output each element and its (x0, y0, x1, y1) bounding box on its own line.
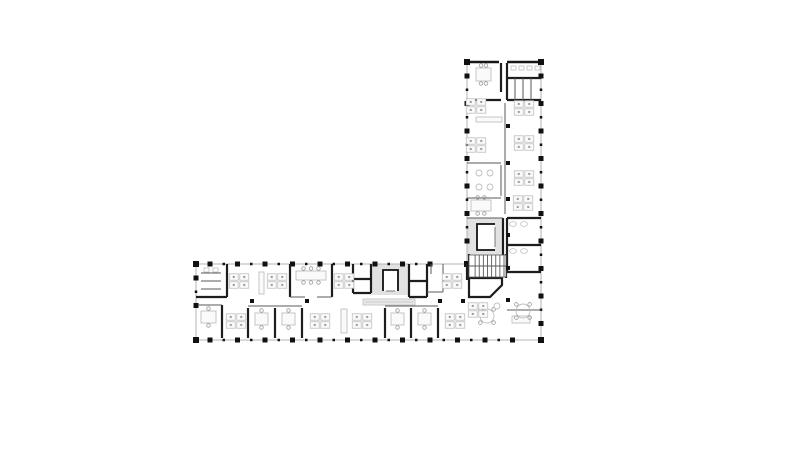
corner-column (193, 261, 199, 267)
desk-chair (366, 324, 368, 326)
desk-chair (324, 324, 326, 326)
desk-chair (338, 276, 340, 278)
chair (515, 303, 519, 307)
desk-chair (470, 140, 472, 142)
facade-column (539, 294, 544, 299)
desk-chair (480, 148, 482, 150)
facade-column (194, 303, 199, 308)
interior-column (305, 299, 309, 303)
facade-column (428, 338, 433, 343)
facade-column (345, 338, 350, 343)
facade-column (345, 262, 350, 267)
facade-tick (540, 254, 543, 257)
floor-plan (0, 0, 800, 472)
facade-column (235, 338, 240, 343)
facade-column (290, 338, 295, 343)
desk-chair (518, 111, 520, 113)
interior-column (506, 124, 510, 128)
meeting-table (255, 313, 268, 325)
desk-chair (281, 276, 283, 278)
facade-column (208, 262, 213, 267)
facade-tick (540, 171, 543, 174)
desk (341, 309, 347, 333)
chair (479, 82, 483, 86)
facade-tick (305, 339, 308, 342)
chair (423, 309, 427, 313)
desk-chair (356, 316, 358, 318)
desk-chair (527, 198, 529, 200)
facade-tick (223, 339, 226, 342)
facade-column (235, 262, 240, 267)
facade-tick (223, 263, 226, 266)
interior-column (506, 266, 510, 270)
desk-chair (517, 198, 519, 200)
facade-tick (540, 89, 543, 92)
desk-chair (456, 284, 458, 286)
facade-tick (250, 263, 253, 266)
wc-fixture (527, 66, 532, 70)
desk-chair (446, 284, 448, 286)
chair (317, 267, 321, 271)
chair (309, 267, 313, 271)
desk-chair (472, 313, 474, 315)
chair (483, 212, 487, 216)
wc-fixture (535, 66, 540, 70)
facade-tick (540, 281, 543, 284)
interior-column (438, 299, 442, 303)
meeting-table (282, 313, 295, 325)
small-round-table (487, 170, 493, 176)
desk-chair (314, 324, 316, 326)
desk-chair (472, 305, 474, 307)
desk-chair (243, 284, 245, 286)
small-round-table (476, 184, 482, 190)
desk-chair (517, 206, 519, 208)
wc-fixture (511, 66, 516, 70)
desk-chair (518, 173, 520, 175)
facade-column (539, 129, 544, 134)
chair (302, 267, 306, 271)
desk-chair (348, 284, 350, 286)
wc-fixture (204, 268, 209, 272)
facade-column (465, 156, 470, 161)
chair (528, 303, 532, 307)
meeting-table (296, 271, 326, 280)
desk-chair (528, 138, 530, 140)
interior-column (506, 161, 510, 165)
facade-column (539, 156, 544, 161)
desk-chair (233, 276, 235, 278)
desk-chair (449, 324, 451, 326)
desk-chair (482, 313, 484, 315)
facade-tick (278, 263, 281, 266)
desk-chair (518, 103, 520, 105)
chair (260, 309, 264, 313)
corner-column (538, 59, 544, 65)
desk-chair (314, 316, 316, 318)
meeting-table (471, 200, 491, 211)
chair (309, 281, 313, 285)
chair (317, 281, 321, 285)
chair (302, 281, 306, 285)
desk-chair (324, 316, 326, 318)
meeting-table (476, 68, 491, 81)
facade-tick (415, 339, 418, 342)
desk-chair (470, 109, 472, 111)
desk-chair (482, 305, 484, 307)
desk-chair (518, 146, 520, 148)
desk-chair (348, 276, 350, 278)
facade-column (455, 338, 460, 343)
facade-column (373, 262, 378, 267)
facade-column (539, 184, 544, 189)
facade-column (194, 276, 199, 281)
desk-chair (527, 206, 529, 208)
desk-chair (233, 284, 235, 286)
sink (521, 249, 528, 254)
desk-chair (528, 111, 530, 113)
chair (287, 309, 291, 313)
facade-tick (415, 263, 418, 266)
desk-chair (366, 316, 368, 318)
facade-tick (466, 89, 469, 92)
interior-column (506, 233, 510, 237)
facade-column (539, 211, 544, 216)
facade-column (263, 262, 268, 267)
desk-chair (356, 324, 358, 326)
desk-chair (459, 316, 461, 318)
small-round-table (487, 184, 493, 190)
facade-column (400, 262, 405, 267)
facade-tick (360, 339, 363, 342)
chair (479, 64, 483, 68)
meeting-table (418, 313, 431, 325)
facade-tick (540, 199, 543, 202)
desk-chair (230, 324, 232, 326)
chair (396, 326, 400, 330)
chair (476, 212, 480, 216)
facade-column (483, 338, 488, 343)
wc-fixture (519, 66, 524, 70)
desk-chair (281, 284, 283, 286)
desk-chair (230, 316, 232, 318)
desk (259, 272, 264, 294)
small-round-table (476, 170, 482, 176)
desk-chair (449, 316, 451, 318)
facade-column (318, 262, 323, 267)
desk-chair (518, 138, 520, 140)
desk-chair (480, 140, 482, 142)
facade-column (465, 74, 470, 79)
stairs (469, 255, 506, 277)
interior-column (506, 197, 510, 201)
facade-column (465, 211, 470, 216)
chair (396, 309, 400, 313)
diagonal-room-wall (469, 278, 502, 297)
desk-chair (338, 284, 340, 286)
desk (476, 117, 502, 122)
desk-chair (528, 146, 530, 148)
corner-column (193, 337, 199, 343)
chair (492, 321, 496, 325)
facade-column (428, 262, 433, 267)
facade-tick (540, 226, 543, 229)
chair (484, 82, 488, 86)
corner-column (464, 59, 470, 65)
sink (510, 249, 517, 254)
floor-plan-page (0, 0, 800, 472)
chair (260, 326, 264, 330)
facade-column (465, 129, 470, 134)
facade-tick (466, 199, 469, 202)
facade-tick (466, 226, 469, 229)
small-round-table (494, 303, 500, 309)
desk-chair (271, 276, 273, 278)
chair (207, 324, 211, 328)
facade-tick (388, 339, 391, 342)
facade-column (208, 338, 213, 343)
facade-tick (305, 263, 308, 266)
facade-column (373, 338, 378, 343)
desk-chair (470, 148, 472, 150)
chair (484, 64, 488, 68)
facade-tick (278, 339, 281, 342)
desk-chair (528, 103, 530, 105)
interior-column (506, 298, 510, 302)
interior-column (250, 299, 254, 303)
elevator-cab (383, 270, 398, 291)
facade-tick (466, 116, 469, 119)
desk-chair (470, 101, 472, 103)
desk-chair (240, 324, 242, 326)
facade-tick (443, 339, 446, 342)
facade-column (539, 239, 544, 244)
facade-tick (540, 116, 543, 119)
facade-column (400, 338, 405, 343)
desk-chair (518, 181, 520, 183)
desk-chair (528, 173, 530, 175)
facade-column (465, 239, 470, 244)
meeting-table (201, 311, 216, 323)
facade-column (510, 338, 515, 343)
desk-chair (480, 109, 482, 111)
facade-tick (540, 144, 543, 147)
chair (479, 321, 483, 325)
desk-chair (446, 276, 448, 278)
facade-tick (466, 171, 469, 174)
desk-chair (271, 284, 273, 286)
desk-chair (480, 101, 482, 103)
meeting-table (391, 313, 404, 325)
facade-column (539, 101, 544, 106)
elevator-cab (477, 224, 495, 250)
desk-chair (240, 316, 242, 318)
facade-tick (470, 339, 473, 342)
chair (207, 307, 211, 311)
sink (510, 222, 517, 227)
facade-column (318, 338, 323, 343)
facade-column (465, 184, 470, 189)
facade-column (263, 338, 268, 343)
desk-chair (243, 276, 245, 278)
desk-chair (456, 276, 458, 278)
sink (521, 222, 528, 227)
facade-column (539, 266, 544, 271)
desk-chair (528, 181, 530, 183)
desk-chair (459, 324, 461, 326)
interior-column (461, 299, 465, 303)
corner-column (538, 337, 544, 343)
facade-tick (250, 339, 253, 342)
facade-tick (360, 263, 363, 266)
chair (287, 326, 291, 330)
facade-tick (333, 339, 336, 342)
chair (423, 326, 427, 330)
facade-tick (498, 339, 501, 342)
wc-fixture (213, 268, 218, 272)
facade-tick (388, 263, 391, 266)
facade-tick (195, 291, 198, 294)
facade-column (539, 321, 544, 326)
